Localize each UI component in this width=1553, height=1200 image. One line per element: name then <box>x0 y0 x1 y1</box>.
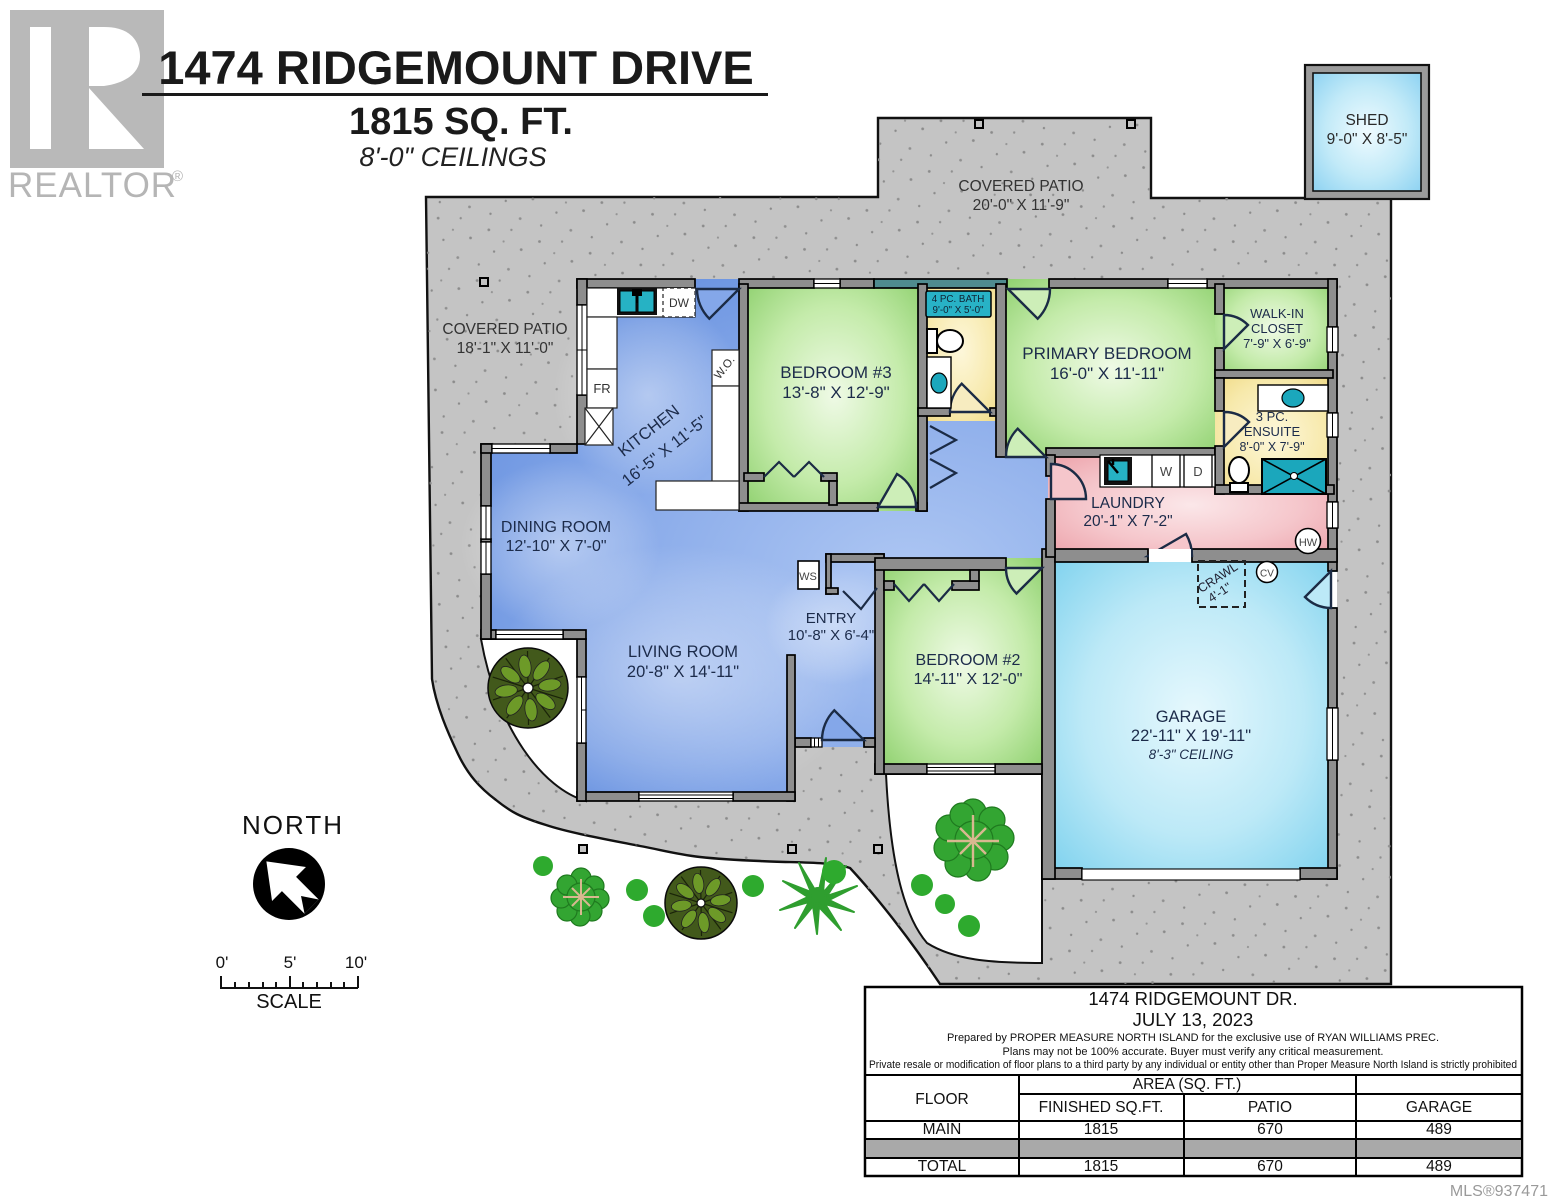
svg-text:5': 5' <box>284 953 297 972</box>
svg-text:CV: CV <box>1260 569 1274 580</box>
svg-text:JULY 13, 2023: JULY 13, 2023 <box>1133 1009 1254 1030</box>
svg-text:1474 RIDGEMOUNT DR.: 1474 RIDGEMOUNT DR. <box>1088 988 1297 1009</box>
svg-text:GARAGE: GARAGE <box>1156 708 1227 726</box>
svg-text:DW: DW <box>669 296 690 310</box>
svg-text:9'-0" X 5'-0": 9'-0" X 5'-0" <box>933 305 985 316</box>
svg-text:489: 489 <box>1426 1121 1452 1138</box>
svg-text:1815: 1815 <box>1084 1158 1118 1175</box>
svg-text:Prepared by PROPER MEASURE NOR: Prepared by PROPER MEASURE NORTH ISLAND … <box>947 1032 1439 1044</box>
svg-text:20'-0" X 11'-9": 20'-0" X 11'-9" <box>973 197 1070 214</box>
svg-text:BEDROOM #3: BEDROOM #3 <box>780 363 891 382</box>
svg-text:20'-8" X 14'-11": 20'-8" X 14'-11" <box>627 663 739 681</box>
svg-text:670: 670 <box>1257 1158 1283 1175</box>
svg-text:7'-9" X 6'-9": 7'-9" X 6'-9" <box>1243 336 1311 351</box>
svg-text:3 PC.: 3 PC. <box>1256 409 1289 424</box>
svg-text:Plans may not be 100% accurate: Plans may not be 100% accurate. Buyer mu… <box>1003 1046 1384 1058</box>
svg-text:W: W <box>1160 464 1173 479</box>
svg-text:12'-10" X 7'-0": 12'-10" X 7'-0" <box>505 538 606 555</box>
svg-text:1815 SQ. FT.: 1815 SQ. FT. <box>349 101 573 143</box>
svg-text:22'-11" X 19'-11": 22'-11" X 19'-11" <box>1131 727 1251 745</box>
svg-text:AREA (SQ. FT.): AREA (SQ. FT.) <box>1133 1076 1242 1093</box>
svg-text:1474 RIDGEMOUNT DRIVE: 1474 RIDGEMOUNT DRIVE <box>158 41 753 94</box>
svg-text:PRIMARY BEDROOM: PRIMARY BEDROOM <box>1022 344 1191 363</box>
svg-text:D: D <box>1193 464 1202 479</box>
svg-text:8'-3" CEILING: 8'-3" CEILING <box>1149 747 1234 762</box>
svg-text:FR: FR <box>593 381 610 396</box>
svg-text:LAUNDRY: LAUNDRY <box>1091 495 1165 512</box>
svg-text:REALTOR: REALTOR <box>8 166 177 205</box>
svg-text:TOTAL: TOTAL <box>918 1158 967 1175</box>
svg-text:489: 489 <box>1426 1158 1452 1175</box>
svg-text:HW: HW <box>1299 537 1318 549</box>
svg-text:LIVING ROOM: LIVING ROOM <box>628 643 738 661</box>
svg-text:MAIN: MAIN <box>923 1121 962 1138</box>
svg-text:FLOOR: FLOOR <box>915 1091 968 1108</box>
svg-text:0': 0' <box>216 953 229 972</box>
svg-text:16'-0" X 11'-11": 16'-0" X 11'-11" <box>1050 364 1164 383</box>
svg-text:SCALE: SCALE <box>256 991 322 1013</box>
svg-text:SHED: SHED <box>1345 112 1388 129</box>
svg-text:BEDROOM #2: BEDROOM #2 <box>916 652 1021 669</box>
svg-text:670: 670 <box>1257 1121 1283 1138</box>
svg-text:8'-0" X 7'-9": 8'-0" X 7'-9" <box>1239 440 1304 454</box>
svg-text:13'-8" X 12'-9": 13'-8" X 12'-9" <box>782 383 889 402</box>
svg-text:4 PC. BATH: 4 PC. BATH <box>932 294 985 305</box>
svg-text:COVERED PATIO: COVERED PATIO <box>442 321 567 338</box>
svg-text:FINISHED SQ.FT.: FINISHED SQ.FT. <box>1039 1099 1164 1116</box>
svg-text:Private resale or modificatio: Private resale or modification of floor … <box>869 1059 1517 1071</box>
svg-text:WS: WS <box>799 571 817 583</box>
svg-text:20'-1" X 7'-2": 20'-1" X 7'-2" <box>1083 513 1172 530</box>
svg-text:14'-11" X 12'-0": 14'-11" X 12'-0" <box>914 671 1023 688</box>
svg-text:CLOSET: CLOSET <box>1251 321 1303 336</box>
svg-text:8'-0" CEILINGS: 8'-0" CEILINGS <box>359 142 546 172</box>
svg-text:DINING ROOM: DINING ROOM <box>501 519 611 536</box>
svg-text:ENTRY: ENTRY <box>806 610 857 627</box>
svg-text:GARAGE: GARAGE <box>1406 1099 1472 1116</box>
svg-text:®: ® <box>172 168 183 185</box>
svg-text:MLS®937471: MLS®937471 <box>1450 1183 1548 1200</box>
svg-text:18'-1" X 11'-0": 18'-1" X 11'-0" <box>457 340 554 357</box>
svg-text:NORTH: NORTH <box>242 810 344 840</box>
svg-text:WALK-IN: WALK-IN <box>1250 306 1304 321</box>
svg-text:COVERED PATIO: COVERED PATIO <box>958 178 1083 195</box>
svg-text:PATIO: PATIO <box>1248 1099 1292 1116</box>
svg-text:1815: 1815 <box>1084 1121 1118 1138</box>
svg-text:9'-0" X 8'-5": 9'-0" X 8'-5" <box>1327 131 1408 148</box>
svg-text:10': 10' <box>345 953 367 972</box>
svg-text:10'-8" X 6'-4": 10'-8" X 6'-4" <box>788 627 874 644</box>
svg-text:ENSUITE: ENSUITE <box>1244 424 1301 439</box>
